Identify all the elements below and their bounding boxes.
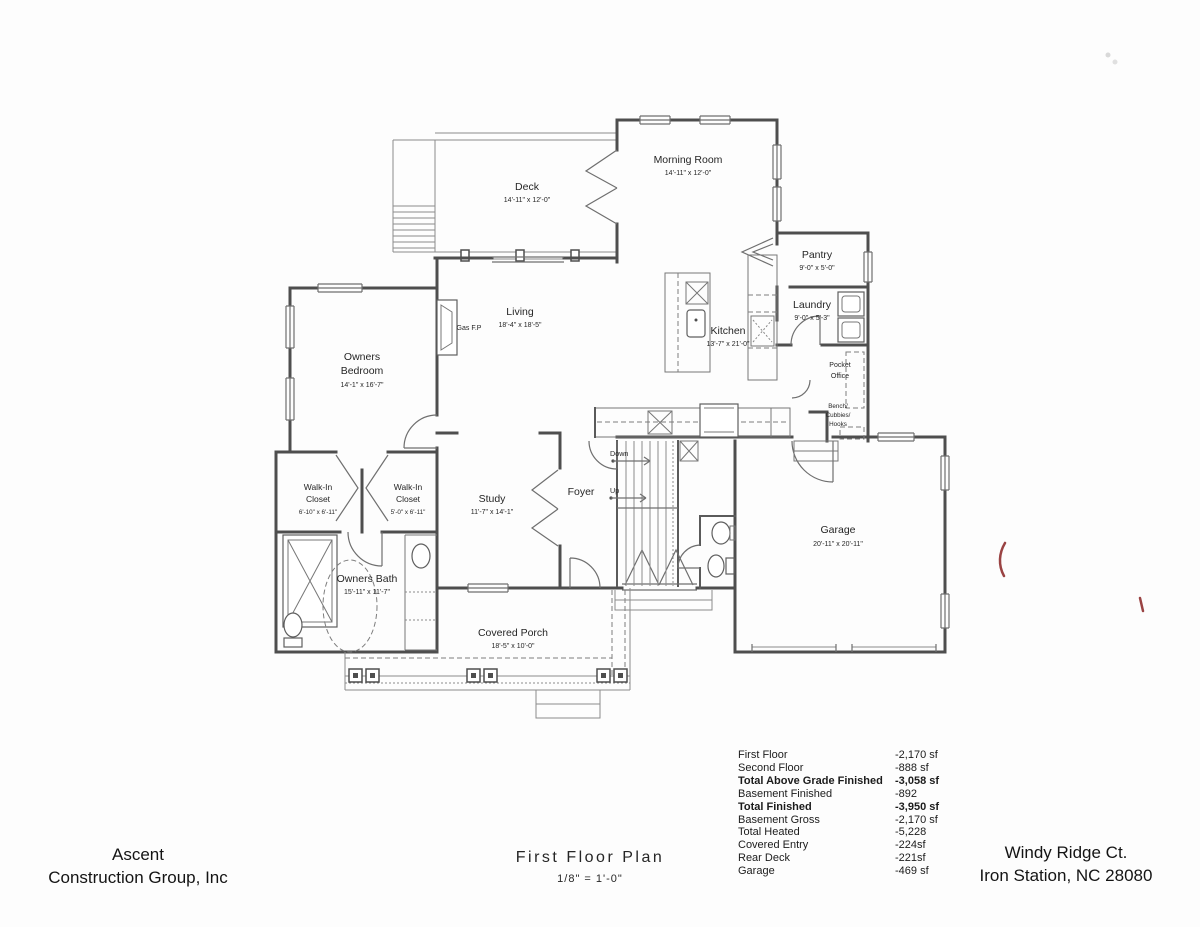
room-label-study: Study (479, 493, 507, 505)
room-dims-study: 11'-7" x 14'-1" (471, 509, 514, 516)
room-dims-laundry: 9'-0" x 5'-3" (794, 315, 830, 322)
scan-smudge-2 (1113, 60, 1118, 65)
fireplace (437, 300, 457, 355)
area-value: -224sf (895, 839, 926, 852)
stairs-up-label: Up (610, 486, 619, 495)
room-dims-garage: 20'-11" x 20'-11" (813, 541, 863, 548)
area-label: Basement Finished (738, 788, 895, 801)
table-row: Covered Entry-224sf (738, 839, 953, 852)
bench-label-2: Cubbies/ (826, 412, 851, 419)
area-label: Total Heated (738, 826, 895, 839)
floor-plan-page: Deck 14'-11" x 12'-0" Morning Room 14'-1… (0, 0, 1200, 927)
area-label: First Floor (738, 749, 895, 762)
table-row: Basement Finished-892 (738, 788, 953, 801)
stairs-down-label: Down (610, 449, 628, 458)
table-row: Second Floor-888 sf (738, 762, 953, 775)
area-value: -2,170 sf (895, 749, 938, 762)
plan-scale: 1/8" = 1'-0" (468, 873, 712, 885)
room-label-covered-porch: Covered Porch (478, 627, 548, 639)
area-label: Total Above Grade Finished (738, 775, 895, 788)
room-label-kitchen: Kitchen (710, 325, 745, 337)
room-label-pantry: Pantry (802, 249, 833, 261)
room-label-wic-right-2: Closet (396, 494, 421, 504)
plan-annotations: Gas F.P Pocket Office Bench/ Cubbies/ Ho… (457, 325, 851, 495)
area-value: -3,950 sf (895, 801, 939, 814)
area-value: -469 sf (895, 865, 929, 878)
room-dims-kitchen: 13'-7" x 21'-0" (706, 341, 750, 348)
area-summary-table: First Floor-2,170 sf Second Floor-888 sf… (738, 749, 953, 878)
area-label: Covered Entry (738, 839, 895, 852)
pocket-office-label-1: Pocket (829, 362, 850, 369)
table-row: Total Above Grade Finished-3,058 sf (738, 775, 953, 788)
room-dims-wic-right: 5'-0" x 6'-11" (391, 509, 426, 516)
room-dims-pantry: 9'-0" x 5'-0" (799, 265, 835, 272)
room-label-owners-bath: Owners Bath (337, 573, 398, 585)
scan-smudge (1106, 53, 1111, 58)
company-name-line2: Construction Group, Inc (22, 868, 254, 888)
address-line2: Iron Station, NC 28080 (944, 866, 1188, 886)
pocket-office-label-2: Office (831, 373, 849, 380)
area-label: Garage (738, 865, 895, 878)
doors (336, 150, 833, 590)
scan-artifact-curve (1000, 543, 1005, 576)
project-address-block: Windy Ridge Ct. Iron Station, NC 28080 (944, 843, 1188, 886)
room-label-morning-room: Morning Room (654, 154, 723, 166)
company-name-block: Ascent Construction Group, Inc (22, 845, 254, 888)
room-label-owners-bedroom-2: Bedroom (341, 365, 384, 377)
scan-artifact-tick (1140, 598, 1143, 611)
powder-room-fixtures (708, 522, 735, 577)
kitchen-island (665, 273, 710, 372)
room-label-wic-left-2: Closet (306, 494, 331, 504)
table-row: Rear Deck-221sf (738, 852, 953, 865)
area-value: -221sf (895, 852, 926, 865)
room-label-garage: Garage (820, 524, 855, 536)
table-row: First Floor-2,170 sf (738, 749, 953, 762)
gas-fireplace-label: Gas F.P (457, 325, 482, 332)
bench-label-1: Bench/ (828, 403, 848, 410)
room-dims-morning-room: 14'-11" x 12'-0" (665, 170, 712, 177)
room-dims-owners-bedroom: 14'-1" x 16'-7" (340, 382, 384, 389)
area-label: Basement Gross (738, 814, 895, 827)
kitchen-counter (595, 404, 790, 437)
room-label-deck: Deck (515, 181, 540, 193)
room-label-foyer: Foyer (568, 486, 595, 498)
room-dims-covered-porch: 18'-5" x 10'-0" (491, 643, 535, 650)
area-value: -888 sf (895, 762, 929, 775)
company-name-line1: Ascent (22, 845, 254, 865)
area-value: -892 (895, 788, 917, 801)
plan-title-block: First Floor Plan 1/8" = 1'-0" (468, 849, 712, 885)
kitchen-tall-cabinets (748, 255, 777, 380)
laundry-appliances (838, 292, 864, 342)
area-value: -5,228 (895, 826, 926, 839)
room-dims-wic-left: 6'-10" x 6'-11" (299, 509, 337, 516)
area-label: Rear Deck (738, 852, 895, 865)
room-label-owners-bedroom-1: Owners (344, 351, 380, 363)
area-value: -2,170 sf (895, 814, 938, 827)
plan-title: First Floor Plan (468, 849, 712, 867)
room-dims-deck: 14'-11" x 12'-0" (504, 197, 551, 204)
area-label: Second Floor (738, 762, 895, 775)
table-row: Total Finished-3,950 sf (738, 801, 953, 814)
room-labels: Deck 14'-11" x 12'-0" Morning Room 14'-1… (299, 154, 864, 650)
stairs (609, 441, 698, 586)
room-dims-living: 18'-4" x 18'-5" (498, 322, 542, 329)
bench-label-3: Hooks (829, 421, 847, 428)
room-label-laundry: Laundry (793, 299, 832, 311)
room-dims-owners-bath: 15'-11" x 11'-7" (344, 589, 390, 596)
table-row: Garage-469 sf (738, 865, 953, 878)
address-line1: Windy Ridge Ct. (944, 843, 1188, 863)
floor-plan-drawing: Deck 14'-11" x 12'-0" Morning Room 14'-1… (0, 0, 1200, 927)
room-label-wic-left-1: Walk-In (304, 482, 333, 492)
room-label-living: Living (506, 306, 534, 318)
table-row: Basement Gross-2,170 sf (738, 814, 953, 827)
room-label-wic-right-1: Walk-In (394, 482, 423, 492)
area-label: Total Finished (738, 801, 895, 814)
scan-artifacts (1000, 53, 1143, 612)
table-row: Total Heated-5,228 (738, 826, 953, 839)
area-value: -3,058 sf (895, 775, 939, 788)
